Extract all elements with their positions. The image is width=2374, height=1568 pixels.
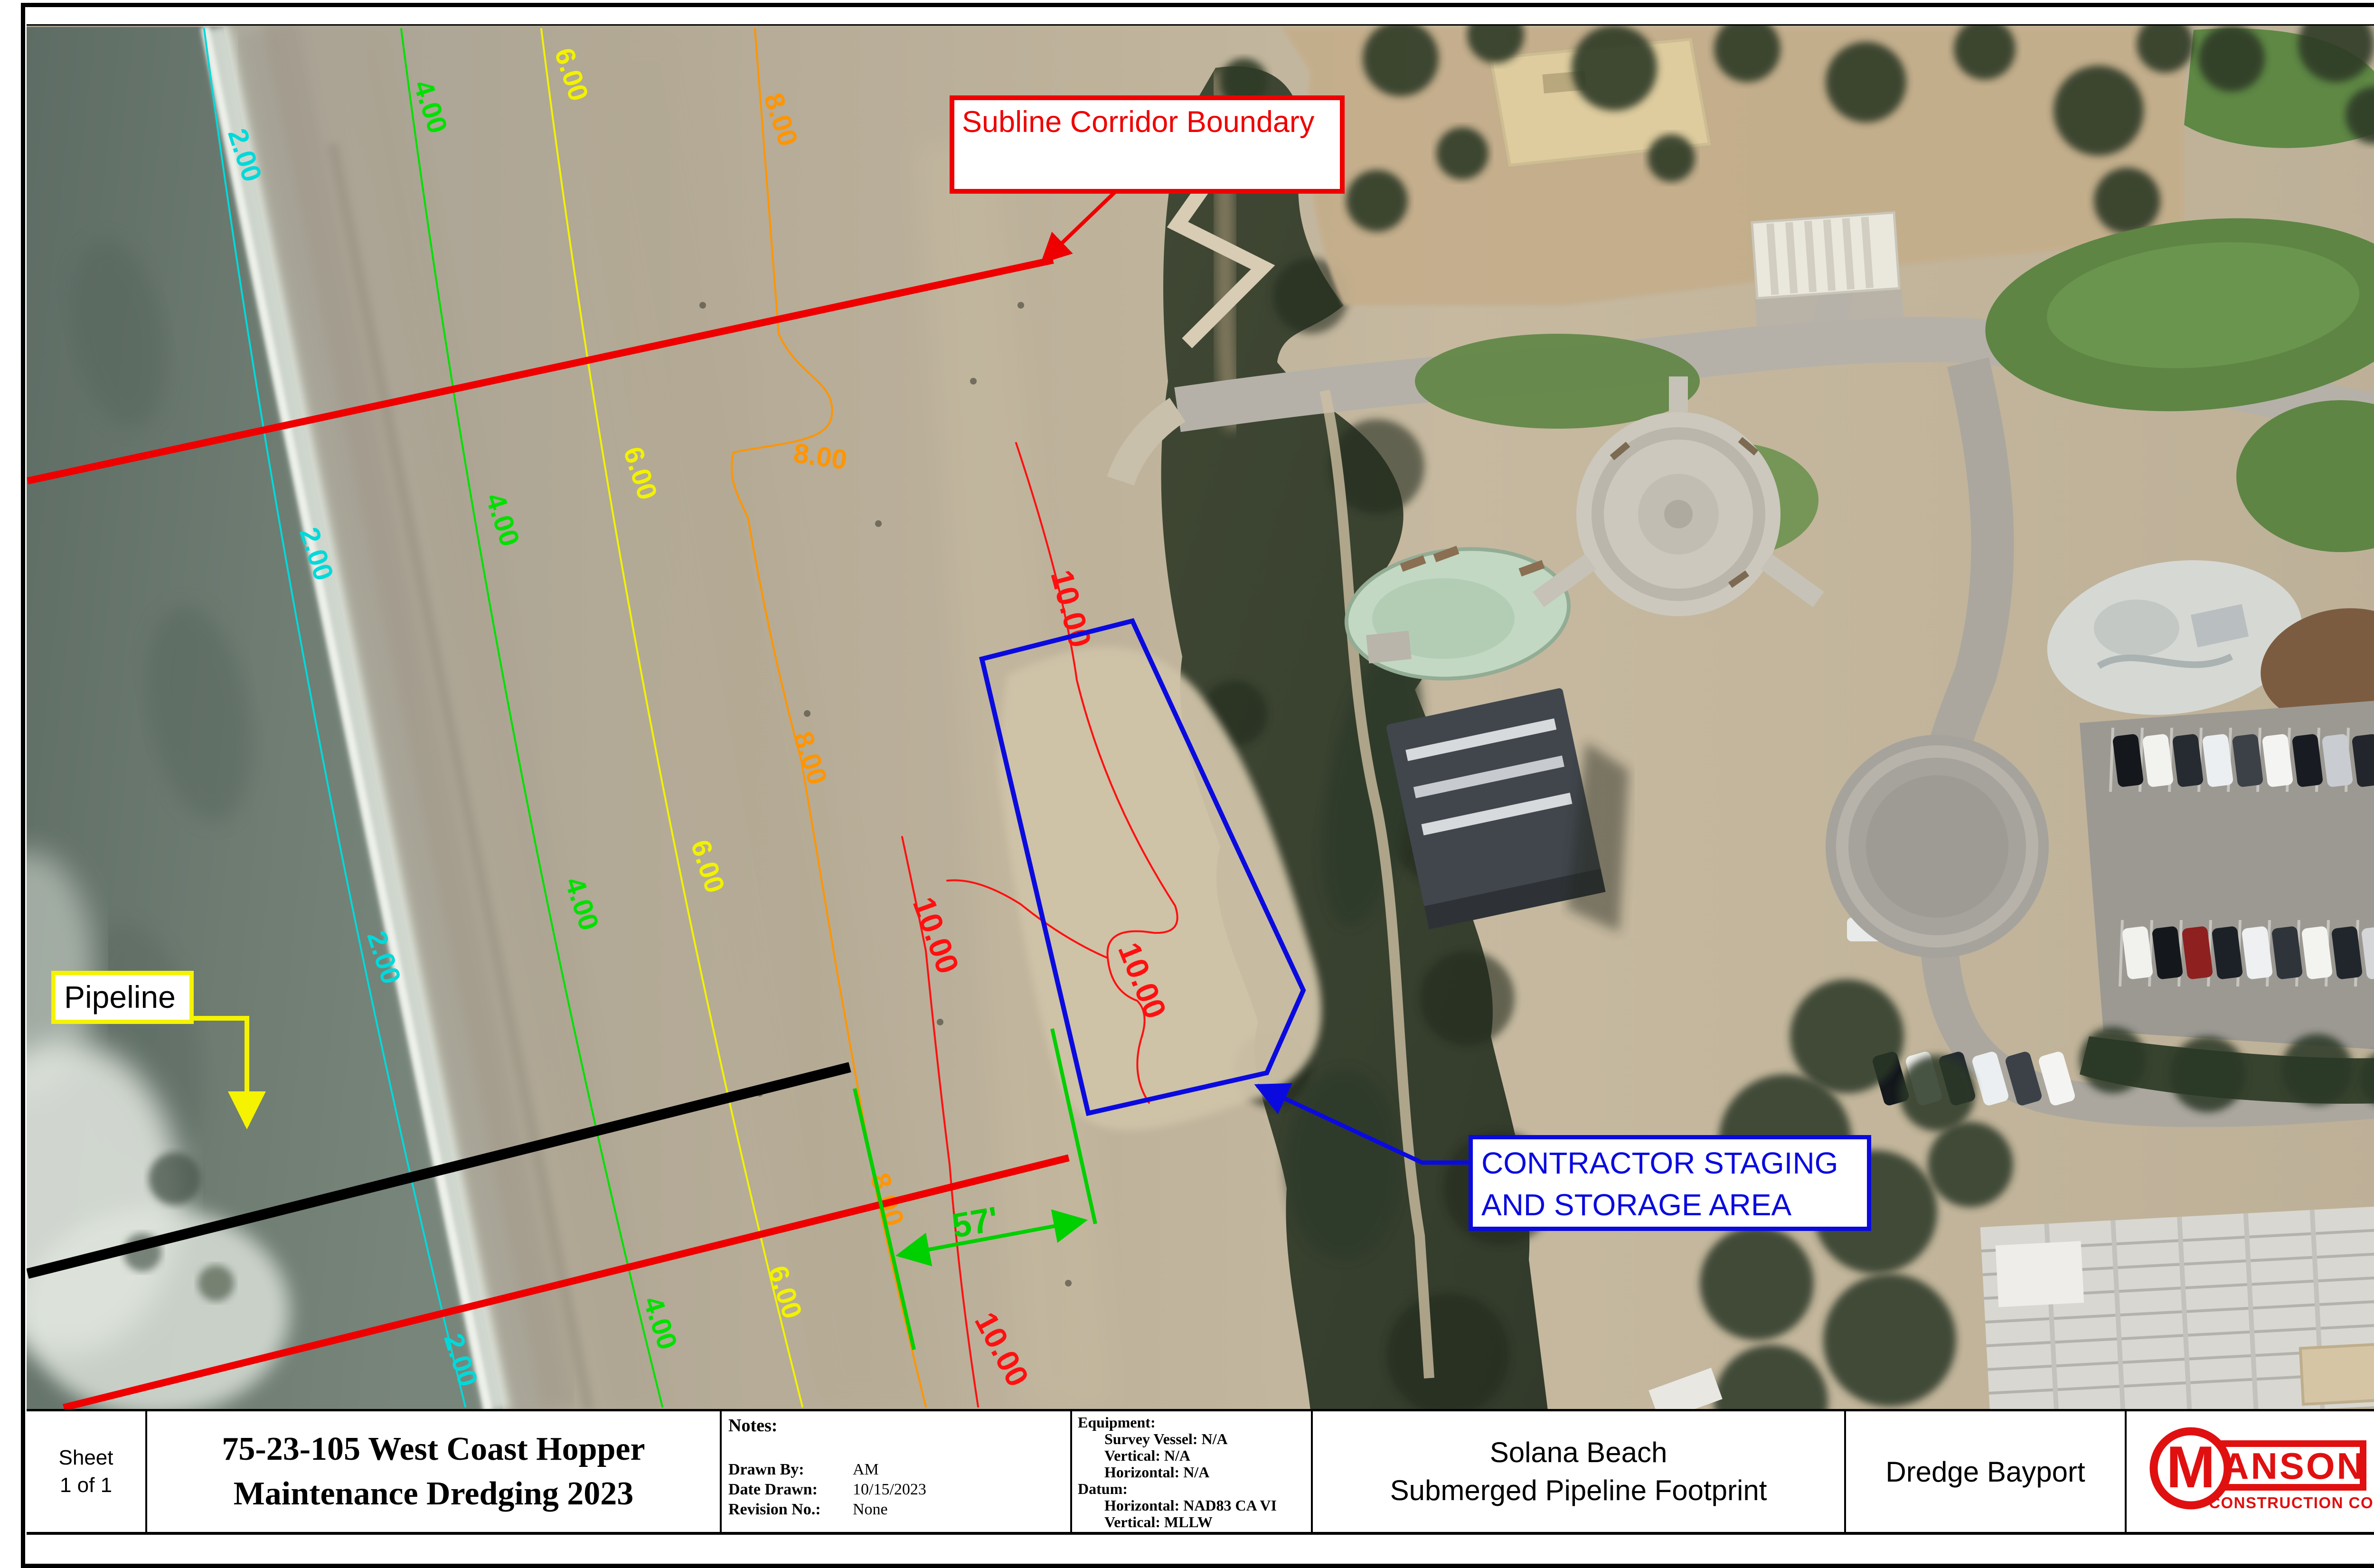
field-label: Drawn By:: [728, 1460, 853, 1480]
location-line2: Submerged Pipeline Footprint: [1390, 1472, 1767, 1510]
pipeline-label: Pipeline: [64, 979, 176, 1014]
contour-label-10.00: 10.00: [906, 892, 966, 978]
contour-label-2.00: 2.00: [438, 1330, 484, 1390]
spec-line: Survey Vessel: N/A: [1078, 1431, 1311, 1447]
project-title-line2: Maintenance Dredging 2023: [234, 1472, 634, 1516]
notes-heading: Notes:: [728, 1415, 777, 1436]
contour-label-8.00: 8.00: [758, 89, 804, 150]
pipeline-callout: Pipeline: [51, 971, 194, 1024]
sheet-number: 1 of 1: [60, 1472, 112, 1499]
equipment-lines: Survey Vessel: N/AVertical: N/AHorizonta…: [1078, 1431, 1311, 1481]
contour-4ft: [401, 29, 662, 1407]
map-area: 2.002.002.002.004.004.004.004.006.006.00…: [27, 24, 2374, 1410]
datum-lines: Horizontal: NAD83 CA VIVertical: MLLW: [1078, 1497, 1311, 1530]
pipeline-leader-arrow: [193, 1018, 247, 1126]
location-cell: Solana Beach Submerged Pipeline Footprin…: [1313, 1411, 1846, 1532]
spec-line: Vertical: N/A: [1078, 1447, 1311, 1464]
staging-leader-arrow: [1257, 1086, 1469, 1163]
survey-annotations: 2.002.002.002.004.004.004.004.006.006.00…: [27, 24, 2374, 1410]
field-label: Date Drawn:: [728, 1480, 853, 1500]
vessel-cell: Dredge Bayport: [1846, 1411, 2127, 1532]
contour-6ft: [541, 29, 802, 1407]
location-line1: Solana Beach: [1490, 1434, 1667, 1472]
spec-line: Horizontal: N/A: [1078, 1464, 1311, 1481]
aerial-scene: 2.002.002.002.004.004.004.004.006.006.00…: [27, 24, 2374, 1410]
sheet-label: Sheet: [59, 1444, 113, 1472]
contour-label-6.00: 6.00: [617, 443, 663, 503]
contour-label-8.00: 8.00: [787, 728, 833, 788]
sheet-cell: Sheet 1 of 1: [27, 1411, 147, 1532]
field-label: Revision No.:: [728, 1500, 853, 1520]
notes-fields: Drawn By:AMDate Drawn:10/15/2023Revision…: [728, 1460, 1065, 1520]
notes-field-row: Date Drawn:10/15/2023: [728, 1480, 1065, 1500]
title-block: Sheet 1 of 1 75-23-105 West Coast Hopper…: [27, 1409, 2374, 1535]
contour-label-6.00: 6.00: [685, 836, 731, 896]
staging-area-polygon: [982, 621, 1303, 1113]
equipment-heading: Equipment:: [1078, 1414, 1311, 1431]
logo-cell: M ANSON CONSTRUCTION CO.: [2127, 1411, 2374, 1532]
field-value: 10/15/2023: [853, 1480, 926, 1500]
datum-heading: Datum:: [1078, 1481, 1311, 1497]
logo-name: ANSON: [2222, 1445, 2365, 1487]
contour-label-2.00: 2.00: [293, 524, 339, 584]
manson-logo: M ANSON CONSTRUCTION CO.: [2141, 1421, 2374, 1521]
contour-label-10.00: 10.00: [1112, 938, 1173, 1023]
corridor-line-south: [64, 1158, 1069, 1408]
dimension-text: 57': [949, 1200, 1001, 1246]
field-value: None: [853, 1500, 888, 1520]
contour-label-2.00: 2.00: [222, 125, 268, 185]
field-value: AM: [853, 1460, 879, 1480]
notes-cell: Notes: Drawn By:AMDate Drawn:10/15/2023R…: [722, 1411, 1072, 1532]
contour-label-8.00: 8.00: [791, 438, 849, 476]
logo-monogram: M: [2166, 1435, 2215, 1500]
notes-field-row: Drawn By:AM: [728, 1460, 1065, 1480]
project-title-line1: 75-23-105 West Coast Hopper: [222, 1427, 645, 1472]
logo-subtitle: CONSTRUCTION CO.: [2209, 1494, 2374, 1512]
contour-label-4.00: 4.00: [480, 489, 526, 550]
contour-label-4.00: 4.00: [637, 1293, 683, 1353]
spec-line: Horizontal: NAD83 CA VI: [1078, 1497, 1311, 1514]
spec-line: Vertical: MLLW: [1078, 1514, 1311, 1530]
contour-label-10.00: 10.00: [968, 1306, 1036, 1392]
contour-label-4.00: 4.00: [559, 873, 605, 934]
subline-corridor-callout: Subline Corridor Boundary: [950, 95, 1345, 194]
project-title-cell: 75-23-105 West Coast Hopper Maintenance …: [147, 1411, 722, 1532]
subline-corridor-label: Subline Corridor Boundary: [962, 105, 1314, 139]
equipment-cell: Equipment: Survey Vessel: N/AVertical: N…: [1072, 1411, 1313, 1532]
staging-area-callout: CONTRACTOR STAGING AND STORAGE AREA: [1469, 1135, 1871, 1231]
notes-field-row: Revision No.:None: [728, 1500, 1065, 1520]
contour-label-6.00: 6.00: [548, 44, 594, 104]
staging-label-line2: AND STORAGE AREA: [1481, 1184, 1858, 1226]
corridor-line-north: [28, 260, 1053, 481]
staging-label-line1: CONTRACTOR STAGING: [1481, 1142, 1858, 1184]
contour-label-6.00: 6.00: [762, 1262, 808, 1322]
vessel-name: Dredge Bayport: [1885, 1455, 2085, 1488]
subline-leader-arrow: [1043, 191, 1116, 262]
depth-contours: [204, 29, 1178, 1407]
